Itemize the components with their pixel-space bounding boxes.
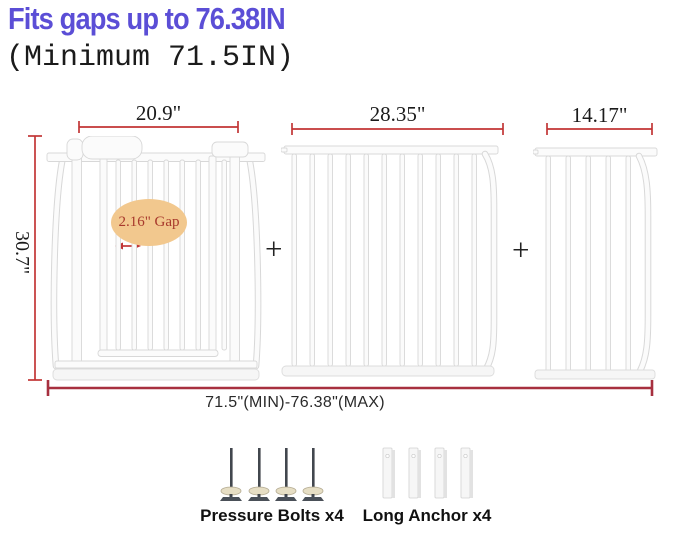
panel-bottom-rail <box>282 366 494 376</box>
product-dimension-diagram: Fits gaps up to 76.38IN (Minimum 71.5IN)… <box>0 0 679 536</box>
gate-latch <box>212 142 248 157</box>
pressure-feet-right <box>250 162 258 366</box>
panel-curved-side-bar <box>485 154 494 369</box>
height-dimension-line <box>28 136 42 380</box>
gate-door-panel <box>45 136 267 384</box>
long-anchor <box>435 448 447 498</box>
pressure-bolts-icon <box>218 444 328 506</box>
gate-left-post <box>72 149 82 371</box>
pressure-bolt <box>220 448 242 501</box>
gate-right-post <box>230 149 240 371</box>
panel-mount-nub <box>281 148 287 152</box>
large-extension-dimension-line <box>292 123 503 135</box>
extension-panel-large <box>281 139 505 383</box>
long-anchor <box>383 448 395 498</box>
panel-top-rail <box>284 146 498 154</box>
long-anchor <box>461 448 473 498</box>
panel-curved-side-bar <box>639 156 648 371</box>
pressure-bolt <box>302 448 324 501</box>
gate-base-plate <box>53 369 259 380</box>
gate-handle <box>67 136 142 160</box>
gap-callout-label: 2.16" Gap <box>118 214 179 231</box>
total-width-label: 71.5"(MIN)-76.38"(MAX) <box>95 394 495 412</box>
pressure-bolt <box>248 448 270 501</box>
gap-callout: 2.16" Gap <box>111 199 187 246</box>
panel-bars <box>292 154 477 366</box>
pressure-bolts-label: Pressure Bolts x4 <box>197 506 347 526</box>
door-width-dimension-line <box>79 121 238 133</box>
long-anchor <box>409 448 421 498</box>
panel-bottom-rail <box>535 370 655 379</box>
panel-mount-nub <box>533 150 538 154</box>
pressure-bolt <box>275 448 297 501</box>
extension-panel-small <box>533 141 667 385</box>
long-anchors-icon <box>375 444 480 504</box>
pressure-feet-left <box>54 162 62 366</box>
small-extension-dimension-line <box>547 123 652 135</box>
gate-bottom-rail <box>55 361 257 368</box>
panel-bars <box>546 156 631 372</box>
long-anchors-label: Long Anchor x4 <box>352 506 502 526</box>
